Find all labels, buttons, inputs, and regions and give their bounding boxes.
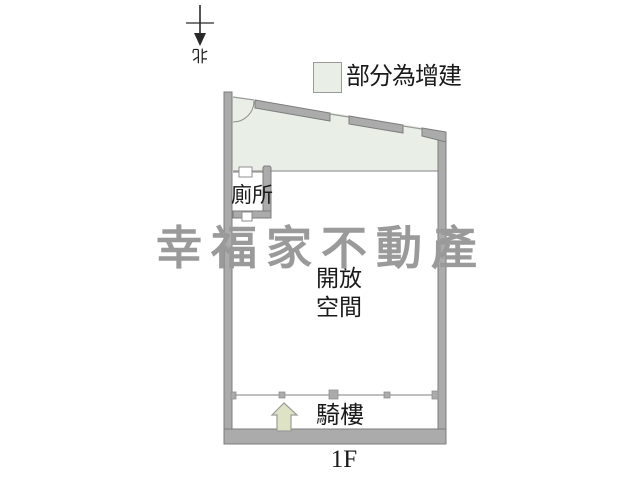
toilet-label: 廁所 [231, 183, 273, 208]
bottom-wall [224, 429, 446, 444]
arcade-post [384, 392, 390, 398]
legend-extension-label: 部分為增建 [346, 63, 461, 91]
legend-extension-swatch [313, 62, 342, 93]
floor-plan-page: 北 部分為增建 廁所 開放 空間 騎樓 1F 幸福家不動產 [0, 0, 640, 480]
arcade-post [279, 392, 285, 398]
floor-label: 1F [244, 445, 444, 475]
arcade-post [231, 392, 236, 399]
right-wall [438, 132, 446, 429]
toilet-door-symbol [239, 167, 252, 177]
north-compass-icon [186, 5, 214, 46]
agency-watermark: 幸福家不動產 [156, 212, 486, 278]
arcade-label: 騎樓 [316, 402, 364, 430]
north-label: 北 [188, 44, 212, 63]
arcade-post [329, 390, 338, 399]
entrance-arrow-icon [272, 403, 297, 431]
arcade-post [432, 391, 438, 399]
